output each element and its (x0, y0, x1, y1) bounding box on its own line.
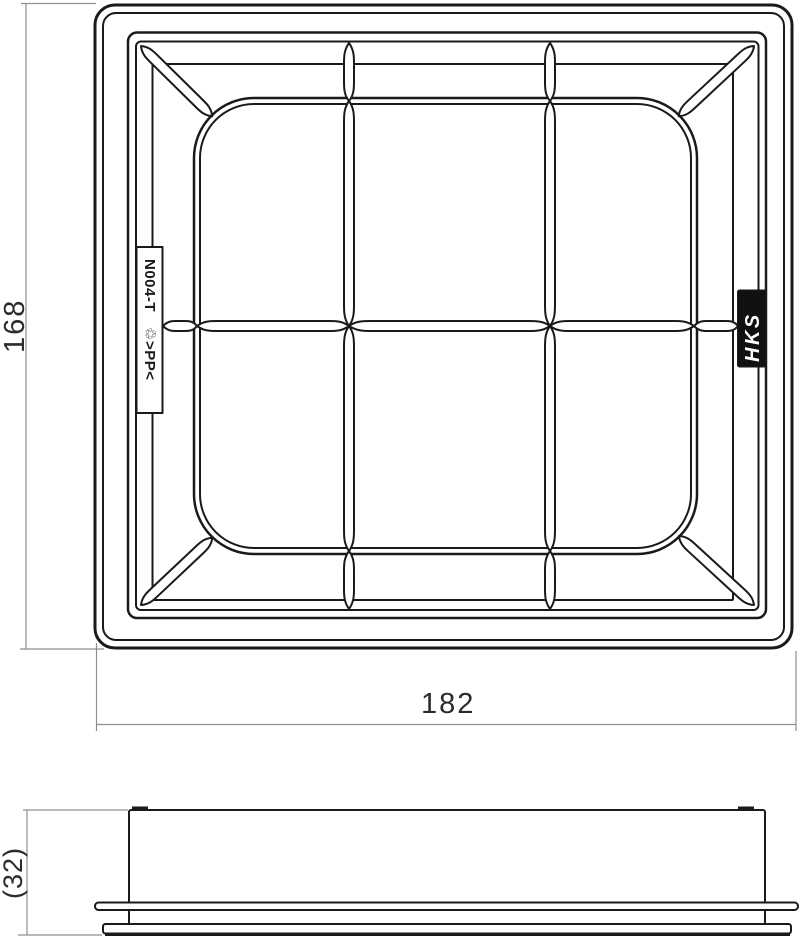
height-dimension-label: 168 (0, 299, 31, 353)
side-body-left-lug (132, 807, 148, 812)
side-view (95, 807, 798, 935)
side-base-flange (103, 924, 791, 934)
corner-rib-top-left (137, 42, 215, 119)
dimension-height-168: 168 (0, 4, 104, 650)
side-height-dimension-label: (32) (0, 847, 28, 899)
brand-logo-text: HKS (742, 312, 764, 362)
air-filter-drawing: N004-T ♲>PP< HKS 168 182 (32) (0, 0, 800, 936)
technical-drawing-page: N004-T ♲>PP< HKS 168 182 (32) (0, 0, 800, 936)
corner-rib-bottom-left (138, 534, 216, 608)
corner-rib-bottom-right (676, 532, 758, 608)
side-seal-lip (95, 903, 798, 911)
horizontal-rib (163, 321, 738, 331)
dimension-side-height-32: (32) (0, 810, 128, 935)
top-view: N004-T ♲>PP< HKS (95, 5, 792, 648)
part-number-tab: N004-T ♲>PP< (137, 247, 163, 413)
width-dimension-label: 182 (421, 688, 475, 720)
part-number-text: N004-T (141, 259, 158, 312)
material-mark-text: ♲>PP< (141, 327, 158, 380)
dimension-width-182: 182 (97, 643, 797, 731)
side-body-right-lug (738, 807, 754, 812)
brand-logo: HKS (738, 290, 767, 367)
corner-rib-top-right (675, 42, 757, 120)
